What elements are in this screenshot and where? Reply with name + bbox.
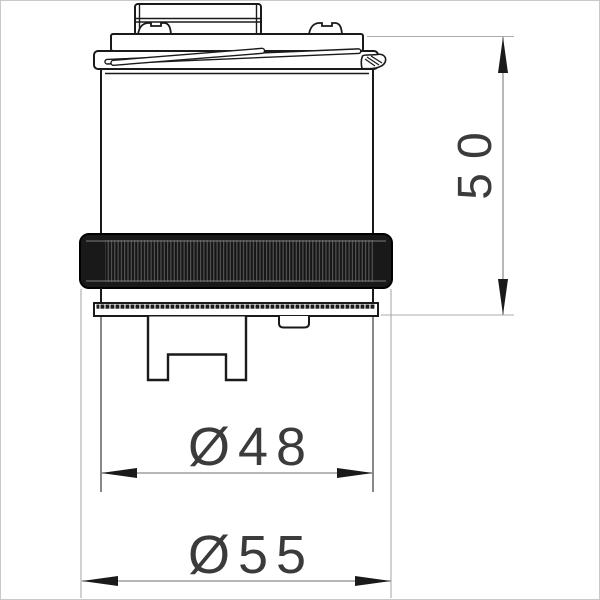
dimension-label-diameter-48: Ø48 (131, 422, 371, 472)
lower-flange-knurl-band (97, 305, 376, 309)
arrowhead-50-top (498, 37, 508, 73)
cartridge-part (80, 4, 392, 380)
drawing-page: Ø48 Ø55 50 (0, 0, 600, 600)
main-body (101, 69, 373, 235)
knurled-ring-texture (105, 240, 373, 282)
drawing-canvas (1, 1, 600, 600)
upper-flange (111, 34, 363, 51)
right-screw-dome (309, 23, 342, 35)
arrowhead-50-bottom (498, 279, 508, 315)
small-tab (279, 316, 309, 328)
dimension-label-diameter-55: Ø55 (131, 530, 371, 580)
bottom-stem (148, 317, 246, 381)
dimension-label-height-50: 50 (451, 79, 501, 239)
arrowhead-d55-left (82, 576, 118, 586)
